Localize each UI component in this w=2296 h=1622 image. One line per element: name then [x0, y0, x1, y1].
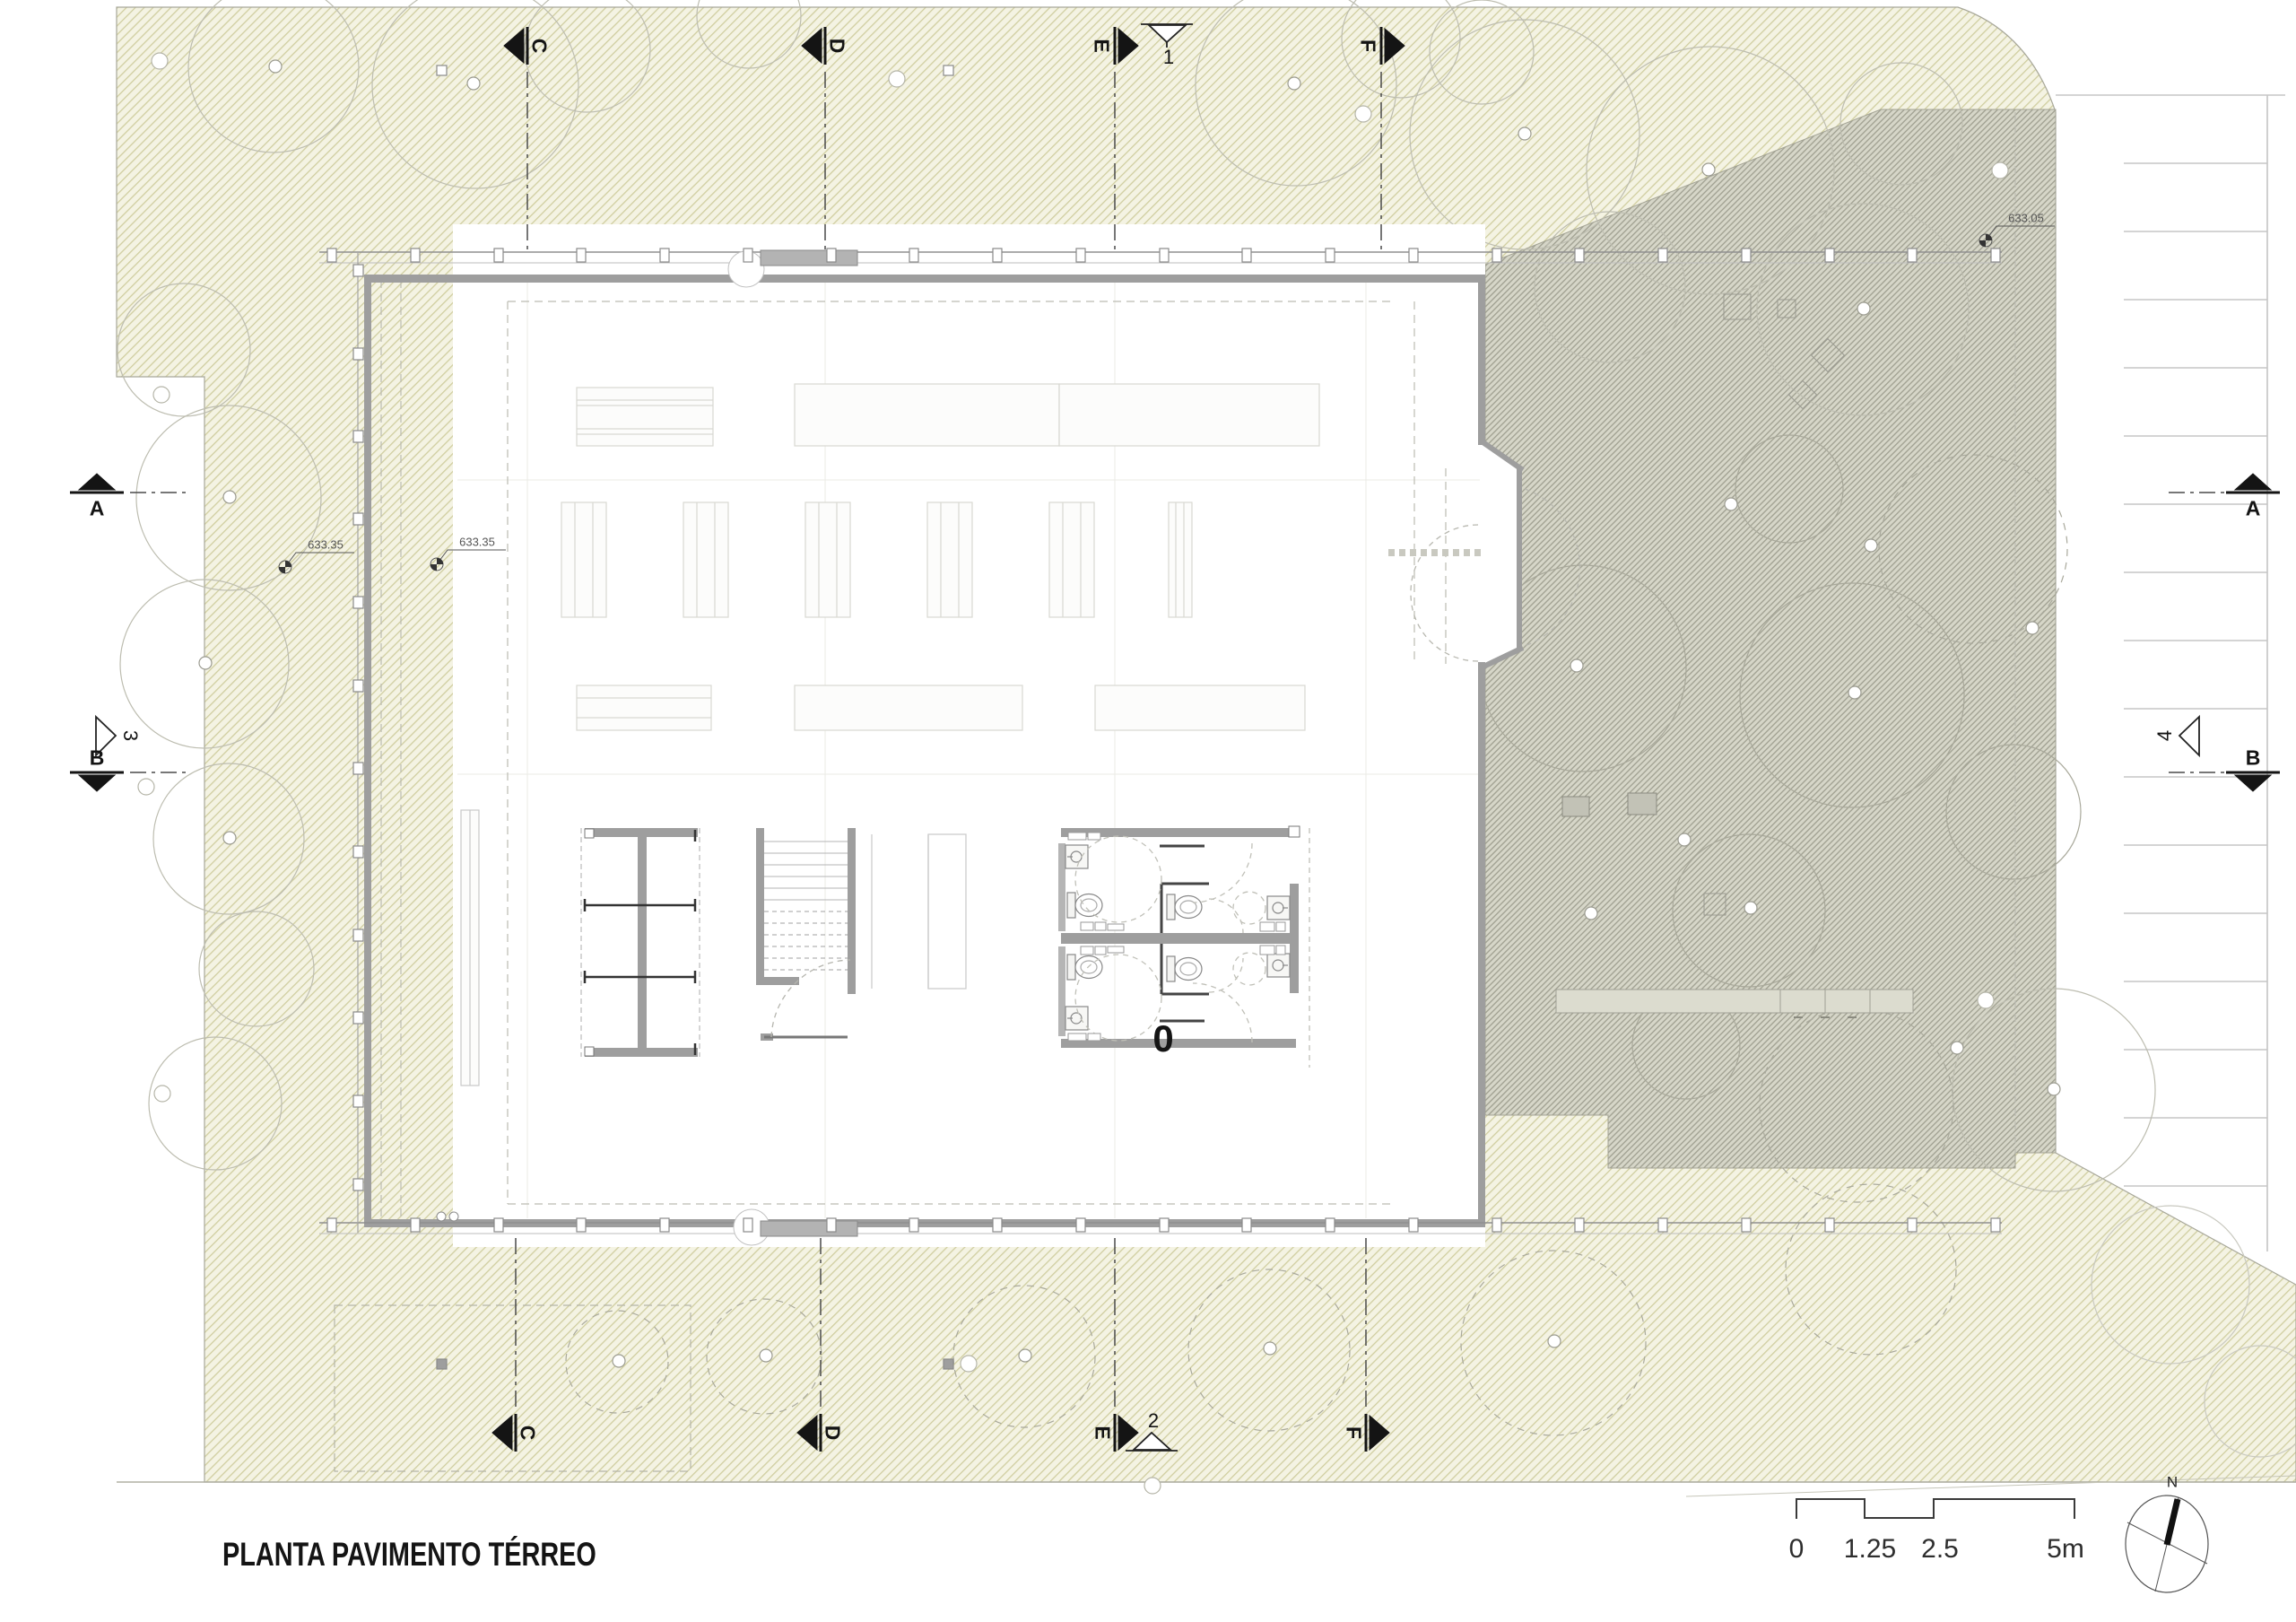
floor-plan-sheet: PLANTA PAVIMENTO TÉRREO C D E F C D E F …: [0, 0, 2296, 1622]
plan-drawing: [0, 0, 2296, 1622]
elevation-view-4: 4: [2155, 730, 2175, 741]
scale-bar: [1796, 1499, 2074, 1519]
scalebar-label-5m: 5m: [2047, 1536, 2084, 1563]
parking-area: [2056, 95, 2285, 1251]
spot-elevation-3: 633.05: [2008, 213, 2044, 224]
section-marker-f-top: F: [1358, 39, 1378, 52]
spot-elevation-2: 633.35: [459, 536, 495, 548]
section-marker-b-right: B: [2246, 748, 2261, 769]
north-label: N: [2167, 1475, 2178, 1490]
section-marker-c-top: C: [529, 39, 550, 54]
level-zero-label: 0: [1152, 1020, 1173, 1058]
elevation-view-1: 1: [1163, 48, 1174, 67]
section-marker-d-top: D: [827, 39, 848, 54]
section-marker-f-bottom: F: [1344, 1426, 1364, 1439]
section-marker-a-left: A: [90, 499, 105, 519]
scalebar-label-25: 2.5: [1921, 1536, 1959, 1563]
section-marker-a-right: A: [2246, 499, 2261, 519]
section-marker-c-bottom: C: [517, 1426, 538, 1441]
section-marker-e-bottom: E: [1092, 1426, 1113, 1439]
elevation-view-3: 3: [120, 730, 140, 741]
north-arrow: [2126, 1496, 2208, 1592]
scalebar-label-0: 0: [1789, 1536, 1805, 1563]
elevation-view-2: 2: [1148, 1411, 1159, 1431]
spot-elevation-1: 633.35: [308, 539, 344, 551]
section-marker-e-top: E: [1091, 39, 1112, 52]
drawing-title: PLANTA PAVIMENTO TÉRREO: [222, 1538, 596, 1571]
scalebar-label-125: 1.25: [1844, 1536, 1896, 1563]
section-marker-b-left: B: [90, 748, 105, 769]
section-marker-d-bottom: D: [822, 1426, 843, 1441]
